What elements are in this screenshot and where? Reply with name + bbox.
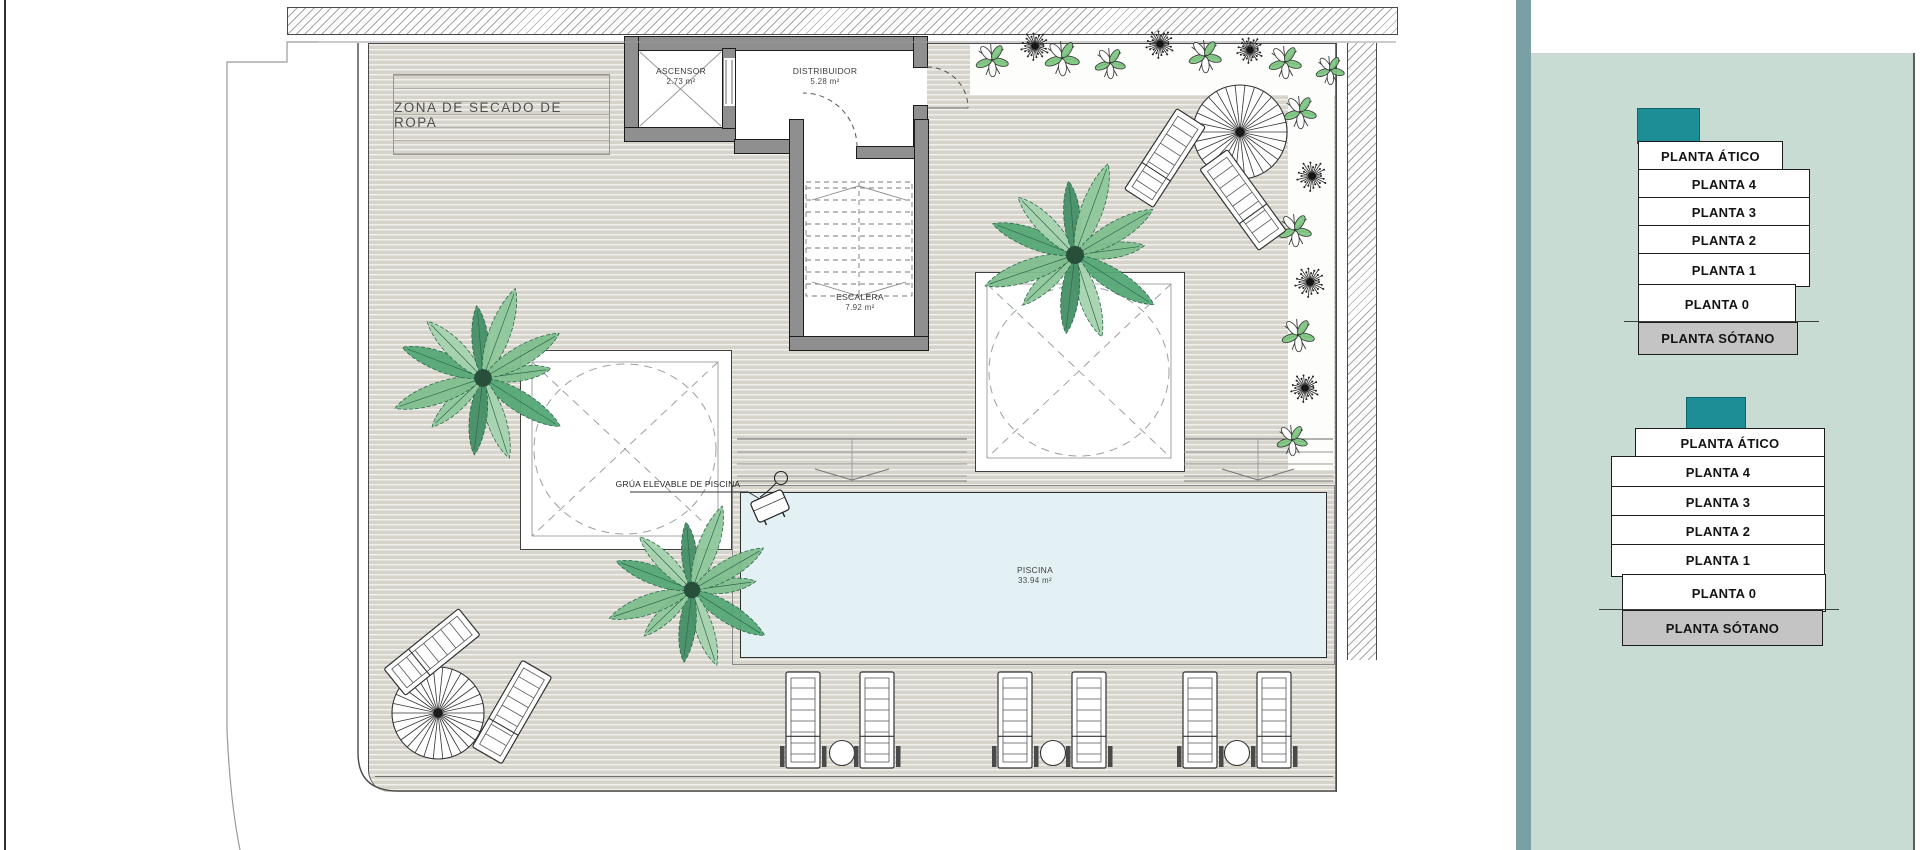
floor-button-atico-top[interactable]: PLANTA ÁTICO [1638,141,1783,172]
drying-zone-label: ZONA DE SECADO DE ROPA [394,100,609,130]
wall [790,337,928,350]
door-opening [914,67,927,106]
floor-button-3-bottom[interactable]: PLANTA 3 [1611,486,1825,518]
sidebar-right-border [1913,53,1915,850]
stair-label: ESCALERA 7.92 m² [812,292,908,313]
sheet-left-border [4,0,6,850]
floor-button-sotano-bottom[interactable]: PLANTA SÓTANO [1622,610,1823,646]
drying-zone: ZONA DE SECADO DE ROPA [393,74,610,155]
attic-roof-indicator [1686,397,1746,431]
planter-strip-top [970,44,1335,95]
neighbor-roof-hatch-top [287,7,1398,35]
skylight-left [520,350,732,550]
floor-button-atico-bottom[interactable]: PLANTA ÁTICO [1635,428,1825,459]
elevator-label: ASCENSOR 2.73 m² [640,66,722,87]
wall [790,120,803,350]
floor-button-1-top[interactable]: PLANTA 1 [1638,253,1810,287]
wall [915,120,928,350]
deck-walkway-line [375,776,1333,777]
floor-button-3-top[interactable]: PLANTA 3 [1638,197,1810,228]
wall [625,37,638,141]
wall [914,37,927,67]
pool-lift-label: GRÚA ELEVABLE DE PISCINA [615,479,741,489]
floor-button-2-bottom[interactable]: PLANTA 2 [1611,515,1825,547]
attic-roof-indicator [1637,108,1700,144]
floor-button-4-top[interactable]: PLANTA 4 [1638,169,1810,200]
pool-label: PISCINA 33.94 m² [970,565,1100,586]
floor-button-1-bottom[interactable]: PLANTA 1 [1611,544,1825,577]
skylight-right [975,272,1185,472]
elevator-door [724,58,735,106]
floor-button-0-bottom[interactable]: PLANTA 0 [1622,574,1826,612]
elevator-cab-floor [638,50,723,128]
distributor-label: DISTRIBUIDOR 5.28 m² [770,66,880,87]
floor-button-sotano-top[interactable]: PLANTA SÓTANO [1638,322,1798,355]
roof-plan-viewer: ZONA DE SECADO DE ROPA PISCINA 33.94 m² … [0,0,1920,850]
floor-button-0-top[interactable]: PLANTA 0 [1638,284,1796,324]
neighbor-roof-hatch-right [1347,43,1377,660]
wall [625,128,735,141]
planter-strip-right [1288,44,1334,470]
wall [625,37,927,50]
floor-button-2-top[interactable]: PLANTA 2 [1638,225,1810,256]
sidebar-accent-strip [1516,0,1531,850]
floor-button-4-bottom[interactable]: PLANTA 4 [1611,456,1825,489]
